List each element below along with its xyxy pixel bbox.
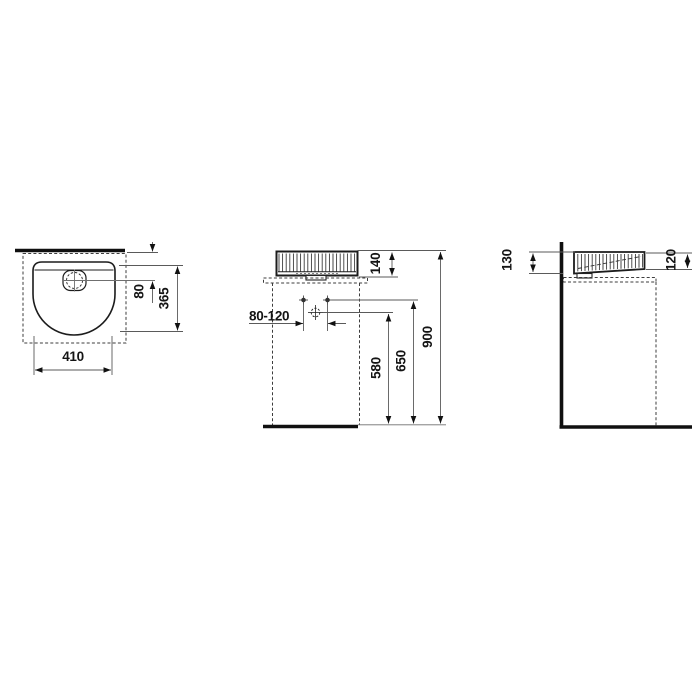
dim-label-580: 580 xyxy=(369,357,384,379)
basin-outline xyxy=(33,262,115,335)
drain-fitting-front xyxy=(296,274,340,281)
technical-drawing-page: 80 365 410 xyxy=(0,0,700,700)
dim-overall-depth: 365 xyxy=(119,266,183,332)
dim-label-140: 140 xyxy=(368,253,383,275)
dim-label-80-120: 80-120 xyxy=(249,309,289,324)
dim-label-410: 410 xyxy=(62,349,84,364)
dim-label-120: 120 xyxy=(664,249,679,271)
dim-drain-offset: 80 xyxy=(127,242,158,303)
dim-label-365: 365 xyxy=(157,287,172,309)
dim-rim-height: 900 xyxy=(420,252,441,424)
dim-overall-width: 410 xyxy=(34,336,112,375)
dim-drain-height: 580 xyxy=(323,313,393,424)
dim-label-80: 80 xyxy=(132,284,147,298)
dim-label-650: 650 xyxy=(394,350,409,372)
water-supply-points xyxy=(299,296,332,305)
dim-label-900: 900 xyxy=(420,326,435,348)
dim-height-back: 130 xyxy=(500,249,576,273)
side-view: 130 120 xyxy=(500,242,693,429)
dim-basin-height: 140 xyxy=(358,251,447,278)
dim-label-130: 130 xyxy=(500,249,515,271)
counter-outline-dashed xyxy=(23,254,126,344)
dim-tap-connection: 80-120 xyxy=(249,304,346,332)
drain-symbol-front xyxy=(308,305,323,320)
basin-hatching xyxy=(278,254,356,272)
washbasin-technical-drawing: 80 365 410 xyxy=(0,0,700,700)
dim-height-front: 120 xyxy=(646,249,692,271)
front-view: 80-120 140 580 650 900 xyxy=(249,251,446,427)
top-view: 80 365 410 xyxy=(15,242,183,375)
